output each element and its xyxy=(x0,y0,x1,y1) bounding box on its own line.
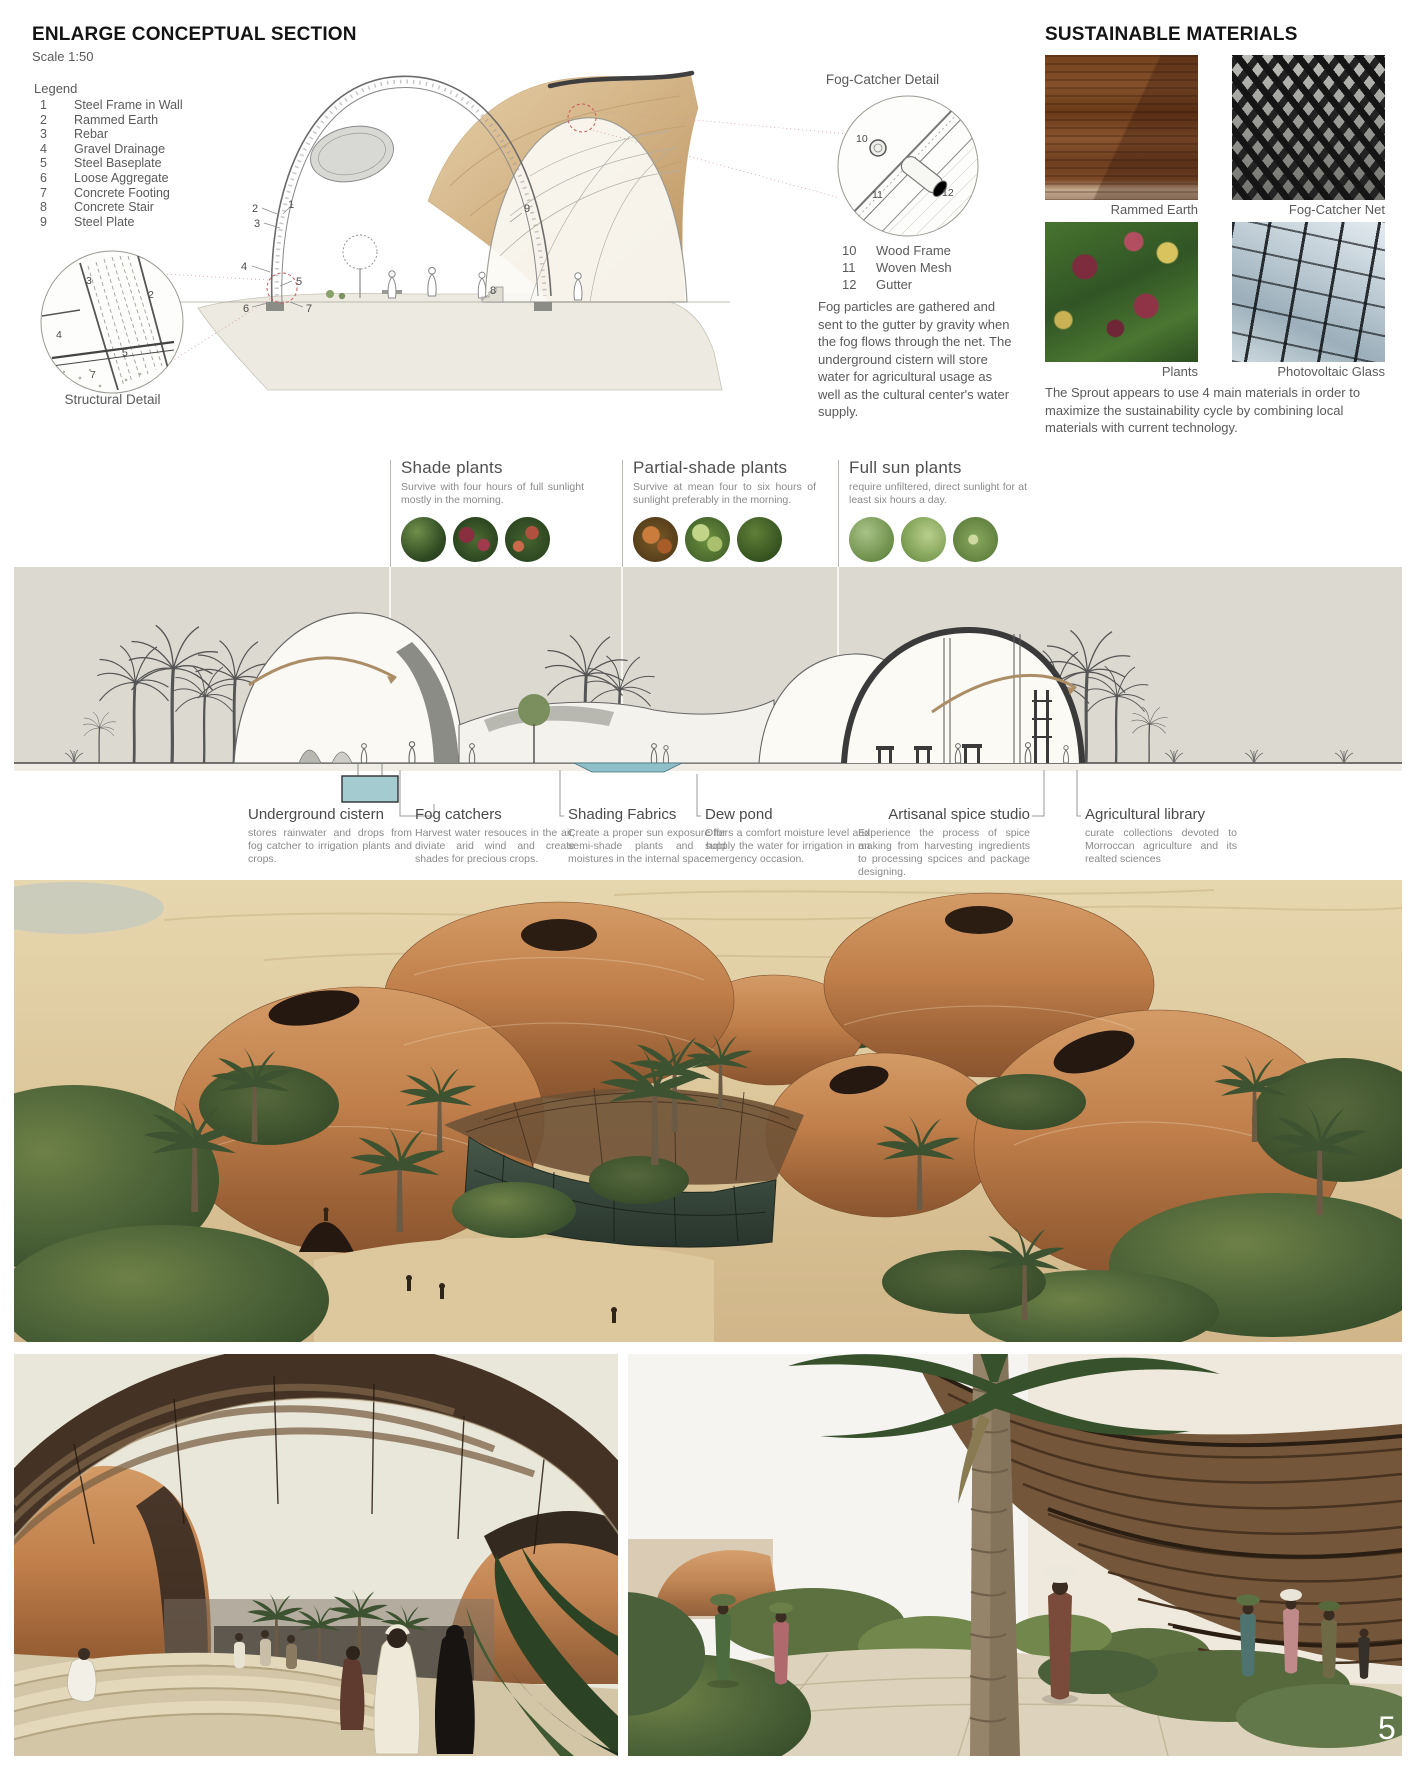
annotation-number: 2 xyxy=(252,203,258,215)
fog-legend-label: Wood Frame xyxy=(876,242,951,259)
plant-category-title: Shade plants xyxy=(401,458,591,478)
plant-category-title: Partial-shade plants xyxy=(633,458,823,478)
plant-category-full-sun: Full sun plants require unfiltered, dire… xyxy=(849,458,1034,562)
feature-shading-fabrics: Shading Fabrics Create a proper sun expo… xyxy=(568,806,726,866)
fog-catcher-net-image xyxy=(1232,55,1385,200)
plant-photos xyxy=(849,517,1034,562)
feature-dew-pond: Dew pond Offers a comfort moisture level… xyxy=(705,806,870,866)
feature-title: Agricultural library xyxy=(1085,806,1237,823)
plant-category-title: Full sun plants xyxy=(849,458,1034,478)
annotation-number: 8 xyxy=(490,285,496,297)
feature-title: Underground cistern xyxy=(248,806,412,823)
fog-legend-num: 11 xyxy=(842,259,876,276)
fog-catcher-detail-circle: 10 11 12 xyxy=(838,96,1025,261)
feature-title: Dew pond xyxy=(705,806,870,823)
annotation-number: 11 xyxy=(872,189,883,201)
plant-category-description: Survive with four hours of full sunlight… xyxy=(401,481,584,507)
feature-title: Shading Fabrics xyxy=(568,806,726,823)
feature-fog-catchers: Fog catchers Harvest water resouces in t… xyxy=(415,806,575,866)
annotation-number: 9 xyxy=(524,203,530,215)
annotation-number: 3 xyxy=(86,275,92,287)
photovoltaic-glass-image xyxy=(1232,222,1385,362)
page-title: ENLARGE CONCEPTUAL SECTION xyxy=(32,24,357,46)
annotation-number: 12 xyxy=(942,187,954,199)
dew-pond-shape xyxy=(574,763,682,772)
feature-title: Artisanal spice studio xyxy=(858,806,1030,823)
ground-section xyxy=(180,293,730,390)
annotation-number: 4 xyxy=(56,329,62,341)
annotation-number: 2 xyxy=(148,289,154,301)
courtyard-sand xyxy=(314,1238,714,1343)
plant-photo xyxy=(453,517,498,562)
feature-description: Create a proper sun exposure for semi-sh… xyxy=(568,827,726,866)
fog-legend-num: 10 xyxy=(842,242,876,259)
fog-legend-item: 11Woven Mesh xyxy=(842,259,1012,276)
plant-photo xyxy=(953,517,998,562)
feature-description: Harvest water resouces in the air, divia… xyxy=(415,827,575,866)
structural-detail-label: Structural Detail xyxy=(40,392,185,407)
feature-description: Experience the process of spice making f… xyxy=(858,827,1030,879)
plant-photo xyxy=(849,517,894,562)
fog-detail-legend: 10Wood Frame 11Woven Mesh 12Gutter xyxy=(842,242,1012,293)
amphitheater-render-image xyxy=(14,1354,618,1756)
annotation-number: 7 xyxy=(306,303,312,315)
plant-photo xyxy=(737,517,782,562)
fog-detail-description: Fog particles are gathered and sent to t… xyxy=(818,298,1016,421)
main-render-image xyxy=(14,880,1402,1342)
annotation-number: 6 xyxy=(243,303,249,315)
presentation-board: ENLARGE CONCEPTUAL SECTION Scale 1:50 Le… xyxy=(0,0,1416,1770)
rammed-earth-image xyxy=(1045,55,1198,200)
material-caption: Plants xyxy=(1045,364,1198,379)
plant-photo xyxy=(901,517,946,562)
plant-category-shade: Shade plants Survive with four hours of … xyxy=(401,458,591,562)
material-caption: Photovoltaic Glass xyxy=(1232,364,1385,379)
plant-photo xyxy=(685,517,730,562)
feature-description: stores rainwater and drops from fog catc… xyxy=(248,827,412,866)
plant-category-description: require unfiltered, direct sunlight for … xyxy=(849,481,1027,507)
annotation-number: 10 xyxy=(856,133,868,145)
walkway-render-image xyxy=(628,1354,1402,1756)
fog-legend-label: Woven Mesh xyxy=(876,259,952,276)
annotation-number: 5 xyxy=(296,276,302,288)
material-caption: Fog-Catcher Net xyxy=(1232,202,1385,217)
feature-description: Offers a comfort moisture level and supp… xyxy=(705,827,870,866)
annotation-number: 3 xyxy=(254,218,260,230)
materials-description: The Sprout appears to use 4 main materia… xyxy=(1045,384,1397,437)
materials-title: SUSTAINABLE MATERIALS xyxy=(1045,24,1298,46)
plant-category-partial-shade: Partial-shade plants Survive at mean fou… xyxy=(633,458,823,562)
page-number: 5 xyxy=(1378,1710,1396,1747)
plant-photo xyxy=(401,517,446,562)
structural-detail-circle: 2 3 4 5 7 xyxy=(41,251,183,393)
annotation-number: 5 xyxy=(122,347,128,359)
plant-photo xyxy=(505,517,550,562)
fog-legend-num: 12 xyxy=(842,276,876,293)
feature-title: Fog catchers xyxy=(415,806,575,823)
material-caption: Rammed Earth xyxy=(1045,202,1198,217)
fog-detail-title: Fog-Catcher Detail xyxy=(795,72,970,87)
feature-agricultural-library: Agricultural library curate collections … xyxy=(1085,806,1237,866)
feature-artisanal-spice-studio: Artisanal spice studio Experience the pr… xyxy=(858,806,1030,879)
feature-description: curate collections devoted to Morroccan … xyxy=(1085,827,1237,866)
plants-image xyxy=(1045,222,1198,362)
annotation-number: 1 xyxy=(288,199,294,211)
plant-photos xyxy=(401,517,591,562)
annotation-number: 7 xyxy=(90,369,96,381)
plant-photos xyxy=(633,517,823,562)
plant-photo xyxy=(633,517,678,562)
fog-legend-label: Gutter xyxy=(876,276,912,293)
annotation-number: 4 xyxy=(241,261,247,273)
plant-category-description: Survive at mean four to six hours of sun… xyxy=(633,481,816,507)
feature-underground-cistern: Underground cistern stores rainwater and… xyxy=(248,806,412,866)
fog-legend-item: 12Gutter xyxy=(842,276,1012,293)
fog-legend-item: 10Wood Frame xyxy=(842,242,1012,259)
